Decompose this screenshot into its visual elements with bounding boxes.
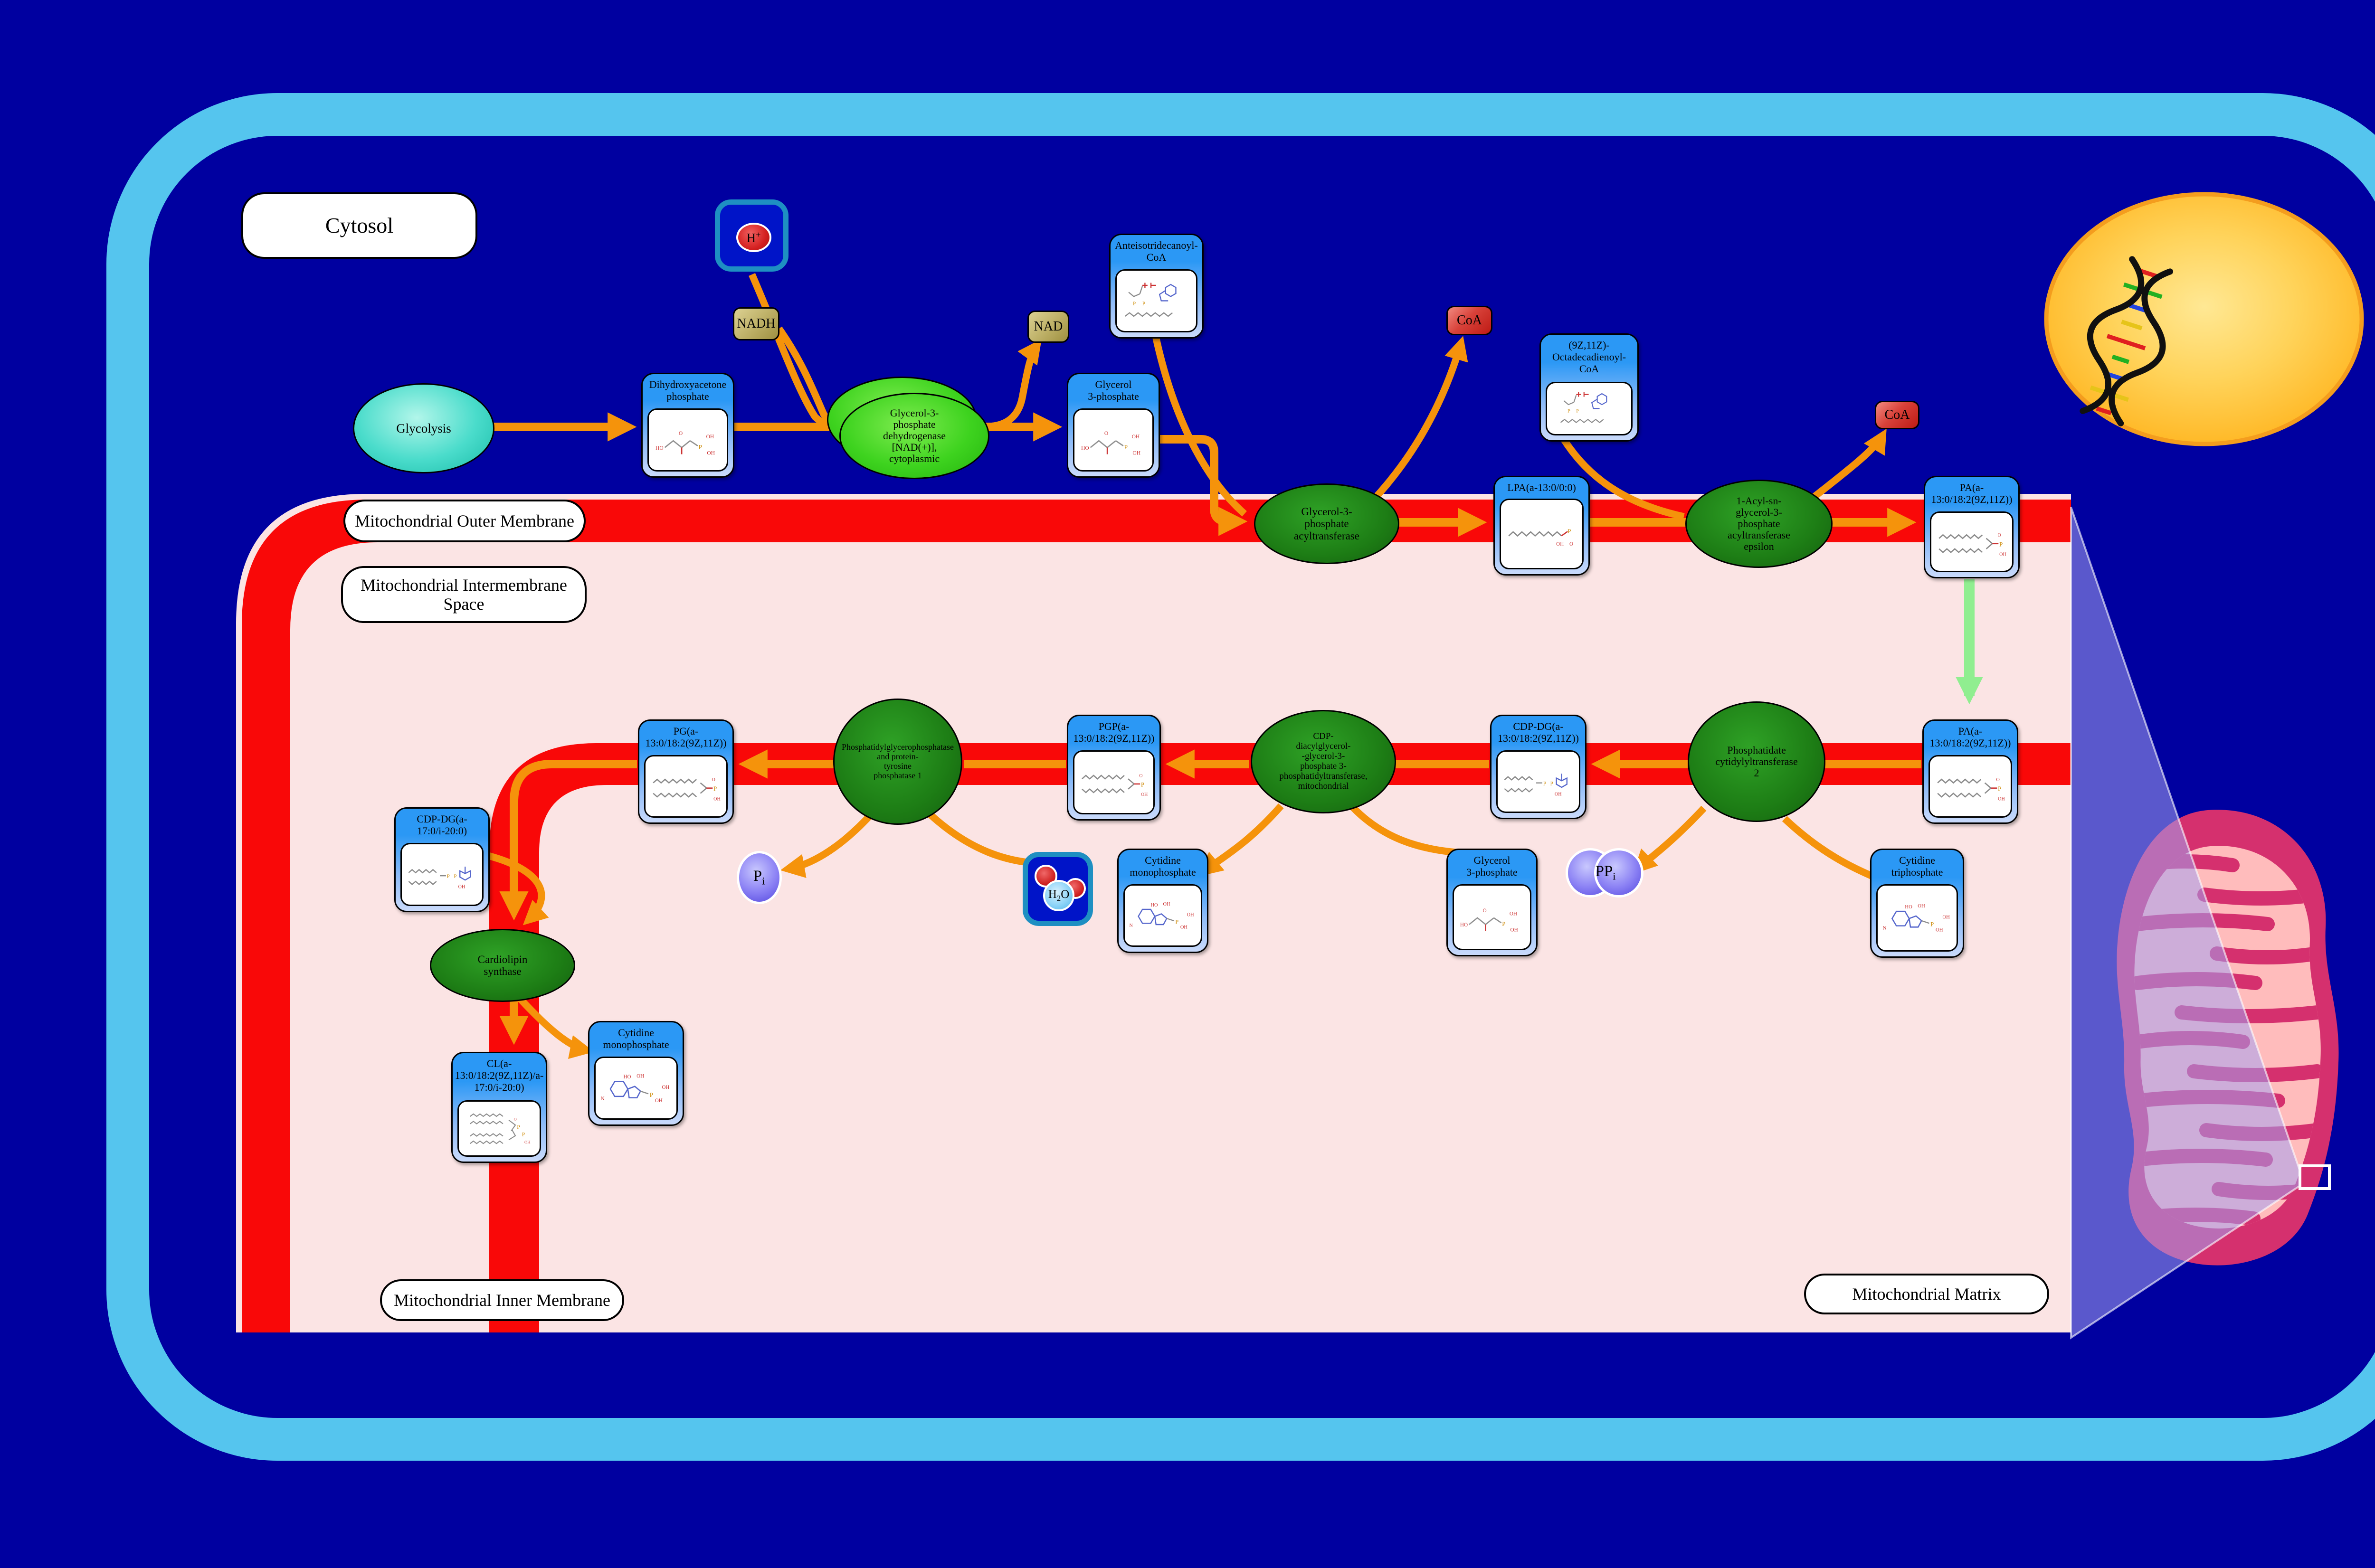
structure-thumbnail: HOOOHOHP <box>652 412 724 468</box>
metabolite-title: CDP-DG(a-13:0/18:2(9Z,11Z)) <box>1493 720 1583 744</box>
metabolite-g3p-bottom[interactable]: Glycerol3-phosphateHOOOHOHP <box>1446 849 1538 956</box>
label-line: dehydrogenase <box>883 430 946 442</box>
metabolite-lpa[interactable]: LPA(a-13:0/0:0)POHO <box>1493 476 1590 576</box>
svg-text:P: P <box>517 1124 520 1130</box>
svg-text:P: P <box>1543 781 1546 786</box>
water-molecule-icon: H2O <box>1043 880 1074 911</box>
svg-text:P: P <box>1133 301 1136 307</box>
label-line: 17:0/i-20:0) <box>455 1081 544 1093</box>
svg-text:OH: OH <box>1132 451 1140 456</box>
label-line: Mitochondrial Matrix <box>1852 1285 2001 1304</box>
label-line: Cardiolipin <box>478 954 528 965</box>
structure-panel: POHO <box>1500 499 1584 569</box>
label-line: Mitochondrial Inner Membrane <box>394 1291 610 1310</box>
label-line: Glycerol <box>1450 854 1534 866</box>
svg-text:O: O <box>1104 431 1108 436</box>
label-line: acyltransferase <box>1294 530 1359 542</box>
label-line: Cytidine <box>1121 854 1205 866</box>
metabolite-ctp[interactable]: CytidinetriphosphateHOOHOHOHNP <box>1870 849 1964 958</box>
svg-text:HO: HO <box>1081 445 1089 451</box>
svg-text:OH: OH <box>636 1073 644 1079</box>
svg-text:OH: OH <box>1555 792 1562 797</box>
label-line: LPA(a-13:0/0:0) <box>1497 482 1586 493</box>
svg-text:P: P <box>1502 921 1506 928</box>
label-line: CDP-DG(a- <box>1493 720 1583 732</box>
label-line: phosphate <box>645 390 731 402</box>
metabolite-title: PG(a-13:0/18:2(9Z,11Z)) <box>641 725 731 749</box>
small-molecule-label: PPi <box>1596 863 1616 883</box>
svg-text:OH: OH <box>655 1098 663 1104</box>
svg-text:HO: HO <box>1905 904 1912 910</box>
label-line: 13:0/18:2(9Z,11Z)) <box>1927 493 2016 505</box>
structure-thumbnail: PPOH <box>1501 754 1576 809</box>
svg-text:HO: HO <box>1151 903 1158 908</box>
pathway-label: Glycolysis <box>396 421 451 436</box>
label-line: (9Z,11Z)- <box>1543 339 1635 351</box>
label-line: Space <box>444 595 484 614</box>
label-line: 3-phosphate <box>1070 390 1157 402</box>
label-line: mitochondrial <box>1298 782 1349 792</box>
label-line: acyltransferase <box>1728 529 1790 541</box>
metabolite-title: Cytidinemonophosphate <box>591 1027 681 1050</box>
label-line: tyrosine <box>884 762 912 771</box>
svg-text:P: P <box>1176 918 1179 925</box>
svg-text:O: O <box>1997 533 2001 538</box>
svg-text:OH: OH <box>1141 792 1148 797</box>
metabolite-cmp-bottom[interactable]: CytidinemonophosphateHOOHOHOHNP <box>588 1021 684 1126</box>
cofactor-nadh[interactable]: NADH <box>733 307 779 340</box>
metabolite-pg[interactable]: PG(a-13:0/18:2(9Z,11Z))POOH <box>638 719 734 824</box>
svg-text:OH: OH <box>1510 911 1517 917</box>
svg-text:P: P <box>1999 541 2003 548</box>
label-line: diacylglycerol- <box>1296 742 1350 752</box>
svg-text:P: P <box>1567 528 1571 535</box>
metabolite-cdp-dg-right[interactable]: CDP-DG(a-13:0/18:2(9Z,11Z))PPOH <box>1490 715 1586 819</box>
svg-text:O: O <box>712 777 715 783</box>
enzyme-cds2[interactable]: Phosphatidatecytidylyltransferase2 <box>1688 701 1825 822</box>
metabolite-dhap[interactable]: DihydroxyacetonephosphateHOOOHOHP <box>641 373 734 478</box>
svg-text:P: P <box>698 444 702 451</box>
label-line: triphosphate <box>1873 866 1961 878</box>
svg-text:OH: OH <box>662 1085 669 1090</box>
svg-text:O: O <box>513 1116 516 1121</box>
structure-thumbnail: PPOOH <box>462 1104 536 1153</box>
structure-panel: HOOOHOHP <box>647 408 728 472</box>
svg-text:P: P <box>1550 781 1553 786</box>
metabolite-cdp-dg-left[interactable]: CDP-DG(a-17:0/i-20:0)PPOH <box>394 807 490 912</box>
label-line: 13:0/18:2(9Z,11Z)) <box>641 737 731 749</box>
compartment-label-intermembrane-space: Mitochondrial IntermembraneSpace <box>341 566 587 623</box>
structure-thumbnail: PPOH <box>405 847 479 902</box>
label-line: PA(a- <box>1926 725 2015 737</box>
svg-text:HO: HO <box>623 1074 631 1080</box>
svg-text:OH: OH <box>1180 925 1187 930</box>
enzyme-agpat-epsilon[interactable]: 1-Acyl-sn-glycerol-3-phosphateacyltransf… <box>1685 480 1833 568</box>
ion-label: H+ <box>747 230 761 246</box>
ion-h2o[interactable]: H2O <box>1023 852 1093 926</box>
structure-panel: PPOH <box>1496 750 1580 813</box>
label-line: 13:0/18:2(9Z,11Z)) <box>1070 732 1158 744</box>
svg-text:OH: OH <box>706 434 714 440</box>
small-molecule-pi[interactable]: Pi <box>737 851 782 904</box>
label-line: monophosphate <box>591 1039 681 1050</box>
metabolite-title: LPA(a-13:0/0:0) <box>1497 482 1586 493</box>
structure-thumbnail: POOH <box>1078 754 1150 811</box>
nucleus <box>2046 194 2362 444</box>
svg-text:O: O <box>1996 777 1999 783</box>
svg-text:OH: OH <box>1163 902 1170 907</box>
svg-text:O: O <box>1483 908 1487 914</box>
structure-thumbnail: HOOOHOHP <box>1078 412 1149 468</box>
label-line: and protein- <box>877 752 918 762</box>
enzyme-ptpmt1[interactable]: Phosphatidylglycerophosphataseand protei… <box>833 699 962 825</box>
label-line: 17:0/i-20:0) <box>398 825 486 837</box>
pathway-link-glycolysis[interactable]: Glycolysis <box>353 383 494 473</box>
cofactor-nad[interactable]: NAD <box>1027 311 1069 343</box>
label-line: 1-Acyl-sn- <box>1736 495 1781 507</box>
svg-text:HO: HO <box>655 445 664 451</box>
structure-panel: POOH <box>644 755 728 818</box>
svg-text:OH: OH <box>707 451 715 456</box>
label-line: [NAD(+)], <box>892 442 937 453</box>
label-line: phosphate <box>893 419 935 430</box>
label-line: 13:0/18:2(9Z,11Z)) <box>1493 732 1583 744</box>
structure-thumbnail: HOOHOHOHNP <box>1881 888 1954 947</box>
structure-panel: HOOHOHOHNP <box>1876 884 1958 952</box>
svg-text:P: P <box>1576 409 1579 414</box>
svg-text:OH: OH <box>1942 915 1950 920</box>
enzyme-g3p-acyltransferase[interactable]: Glycerol-3-phosphateacyltransferase <box>1254 483 1399 564</box>
metabolite-title: Anteisotridecanoyl-CoA <box>1112 239 1200 263</box>
label-line: phosphate 3- <box>1300 762 1347 772</box>
svg-text:OH: OH <box>713 796 721 802</box>
structure-panel: POOH <box>1073 750 1155 814</box>
label-line: PG(a- <box>641 725 731 737</box>
metabolite-title: Cytidinetriphosphate <box>1873 854 1961 878</box>
svg-text:P: P <box>1998 785 2001 792</box>
structure-panel: PPOOH <box>457 1100 541 1157</box>
svg-text:OH: OH <box>1556 541 1564 547</box>
structure-panel: PP <box>1115 269 1197 332</box>
proton-icon: H+ <box>736 223 771 252</box>
compartment-label-inner-membrane: Mitochondrial Inner Membrane <box>380 1279 624 1321</box>
compartment-label-matrix: Mitochondrial Matrix <box>1804 1274 2049 1314</box>
cofactor-coa-1[interactable]: CoA <box>1446 306 1492 335</box>
label-line: 13:0/18:2(9Z,11Z)) <box>1926 737 2015 749</box>
structure-panel: POOH <box>1930 511 2014 572</box>
metabolite-title: PGP(a-13:0/18:2(9Z,11Z)) <box>1070 720 1158 744</box>
svg-text:OH: OH <box>1510 927 1518 933</box>
small-molecule-ppi[interactable]: PPi <box>1566 846 1645 899</box>
metabolite-pa-top[interactable]: PA(a-13:0/18:2(9Z,11Z))POOH <box>1924 476 2020 578</box>
svg-text:P: P <box>1124 444 1127 451</box>
svg-text:HO: HO <box>1460 922 1468 928</box>
svg-text:O: O <box>1569 541 1573 547</box>
svg-text:OH: OH <box>1999 552 2006 557</box>
metabolite-title: Cytidinemonophosphate <box>1121 854 1205 878</box>
structure-thumbnail: POOH <box>649 759 723 814</box>
label-line: phosphatase 1 <box>874 771 921 781</box>
enzyme-pgs1[interactable]: CDP-diacylglycerol--glycerol-3-phosphate… <box>1251 710 1396 813</box>
svg-text:P: P <box>1930 921 1934 928</box>
label-line: Cytidine <box>591 1027 681 1039</box>
ion-label: H2O <box>1048 888 1070 903</box>
metabolite-title: Glycerol3-phosphate <box>1450 854 1534 878</box>
label-line: phosphatidyltransferase, <box>1279 772 1367 782</box>
pathway-canvas: CytosolMitochondrial Outer MembraneMitoc… <box>0 0 2375 1568</box>
metabolite-anteisotridecanoyl-coa[interactable]: Anteisotridecanoyl-CoAPP <box>1109 234 1204 339</box>
cofactor-label: NADH <box>737 316 776 331</box>
label-line: Cytosol <box>325 213 393 238</box>
svg-text:P: P <box>713 785 717 792</box>
label-line: 2 <box>1754 767 1759 779</box>
svg-text:O: O <box>1139 774 1142 779</box>
svg-text:P: P <box>447 874 450 879</box>
svg-text:OH: OH <box>524 1140 531 1144</box>
structure-thumbnail: POOH <box>1935 515 2009 568</box>
metabolite-pgp[interactable]: PGP(a-13:0/18:2(9Z,11Z))POOH <box>1067 715 1161 821</box>
label-line: Glycerol-3- <box>1301 506 1352 518</box>
label-line: CDP-DG(a- <box>398 813 486 825</box>
label-line: PA(a- <box>1927 482 2016 493</box>
structure-thumbnail: HOOHOHOHNP <box>599 1060 673 1116</box>
label-line: Mitochondrial Outer Membrane <box>355 511 574 530</box>
svg-text:N: N <box>1130 923 1133 928</box>
label-line: CoA <box>1112 251 1200 263</box>
svg-text:OH: OH <box>1187 913 1194 918</box>
structure-panel: PP <box>1546 382 1633 435</box>
label-line: CDP- <box>1313 732 1333 742</box>
structure-panel: HOOHOHOHNP <box>594 1057 678 1120</box>
label-line: Octadecadienoyl- <box>1543 351 1635 363</box>
svg-text:N: N <box>1882 926 1886 931</box>
label-line: cytidylyltransferase <box>1715 756 1798 767</box>
svg-text:O: O <box>678 431 682 436</box>
svg-text:P: P <box>1142 301 1145 307</box>
label-line: monophosphate <box>1121 866 1205 878</box>
label-line: epsilon <box>1744 541 1774 552</box>
structure-thumbnail: POOH <box>1933 759 2007 814</box>
label-line: Phosphatidate <box>1727 745 1786 756</box>
svg-text:P: P <box>1141 781 1144 788</box>
label-line: synthase <box>484 965 521 977</box>
ion-h-plus[interactable]: H+ <box>715 199 788 272</box>
metabolite-cl[interactable]: CL(a-13:0/18:2(9Z,11Z)/a-17:0/i-20:0)PPO… <box>451 1052 547 1163</box>
label-line: Glycerol <box>1070 378 1157 390</box>
label-line: -glycerol-3- <box>1302 752 1345 762</box>
label-line: CoA <box>1543 363 1635 375</box>
structure-panel: PPOH <box>400 843 484 906</box>
svg-text:OH: OH <box>1936 927 1943 933</box>
metabolite-title: CL(a-13:0/18:2(9Z,11Z)/a-17:0/i-20:0) <box>455 1058 544 1093</box>
structure-thumbnail: POHO <box>1504 503 1579 566</box>
label-line: 3-phosphate <box>1450 866 1534 878</box>
metabolite-title: (9Z,11Z)-Octadecadienoyl-CoA <box>1543 339 1635 375</box>
metabolite-title: PA(a-13:0/18:2(9Z,11Z)) <box>1926 725 2015 749</box>
svg-text:OH: OH <box>1131 434 1140 440</box>
cofactor-label: CoA <box>1457 313 1482 328</box>
svg-text:P: P <box>650 1092 653 1098</box>
label-line: Glycerol-3- <box>890 407 939 419</box>
cofactor-label: NAD <box>1034 319 1063 334</box>
enzyme-cardiolipin-synthase[interactable]: Cardiolipinsynthase <box>430 929 575 1002</box>
cofactor-coa-2[interactable]: CoA <box>1875 401 1919 429</box>
label-line: Cytidine <box>1873 854 1961 866</box>
svg-text:P: P <box>522 1132 525 1137</box>
metabolite-g3p-top[interactable]: Glycerol3-phosphateHOOOHOHP <box>1067 373 1160 478</box>
metabolite-title: Dihydroxyacetonephosphate <box>645 378 731 402</box>
label-line: Dihydroxyacetone <box>645 378 731 390</box>
compartment-label-outer-membrane: Mitochondrial Outer Membrane <box>343 500 586 542</box>
structure-panel: HOOOHOHP <box>1453 884 1531 950</box>
structure-panel: POOH <box>1928 755 2012 818</box>
svg-text:OH: OH <box>458 885 465 890</box>
metabolite-pa-bottom[interactable]: PA(a-13:0/18:2(9Z,11Z))POOH <box>1922 719 2018 824</box>
svg-text:P: P <box>454 874 456 879</box>
structure-thumbnail: HOOHOHOHNP <box>1128 888 1197 943</box>
label-line: 13:0/18:2(9Z,11Z)/a- <box>455 1069 544 1081</box>
cofactor-label: CoA <box>1885 407 1910 423</box>
metabolite-octadecadienoyl-coa[interactable]: (9Z,11Z)-Octadecadienoyl-CoAPP <box>1539 333 1639 442</box>
svg-text:OH: OH <box>1918 903 1925 909</box>
metabolite-cmp-middle[interactable]: CytidinemonophosphateHOOHOHOHNP <box>1117 849 1208 953</box>
metabolite-title: Glycerol3-phosphate <box>1070 378 1157 402</box>
structure-thumbnail: PP <box>1120 273 1193 329</box>
structure-thumbnail: PP <box>1550 385 1628 432</box>
label-line: Anteisotridecanoyl- <box>1112 239 1200 251</box>
svg-text:N: N <box>600 1096 604 1102</box>
structure-thumbnail: HOOOHOHP <box>1457 888 1527 946</box>
label-line: Mitochondrial Intermembrane <box>361 576 567 595</box>
structure-panel: HOOHOHOHNP <box>1123 884 1202 947</box>
label-line: Phosphatidylglycerophosphatase <box>842 743 954 752</box>
label-line: PGP(a- <box>1070 720 1158 732</box>
enzyme-g3p-dehydrogenase[interactable]: Glycerol-3-phosphatedehydrogenase[NAD(+)… <box>839 393 989 479</box>
label-line: CL(a- <box>455 1058 544 1069</box>
metabolite-title: CDP-DG(a-17:0/i-20:0) <box>398 813 486 837</box>
label-line: glycerol-3- <box>1736 507 1782 518</box>
svg-text:P: P <box>1567 409 1570 414</box>
metabolite-title: PA(a-13:0/18:2(9Z,11Z)) <box>1927 482 2016 505</box>
small-molecule-label: Pi <box>753 868 765 888</box>
label-line: cytoplasmic <box>889 453 940 464</box>
label-line: phosphate <box>1738 518 1780 529</box>
svg-text:OH: OH <box>1998 796 2005 802</box>
compartment-label-cytosol: Cytosol <box>241 192 477 259</box>
label-line: phosphate <box>1304 518 1349 529</box>
structure-panel: HOOOHOHP <box>1073 408 1154 472</box>
